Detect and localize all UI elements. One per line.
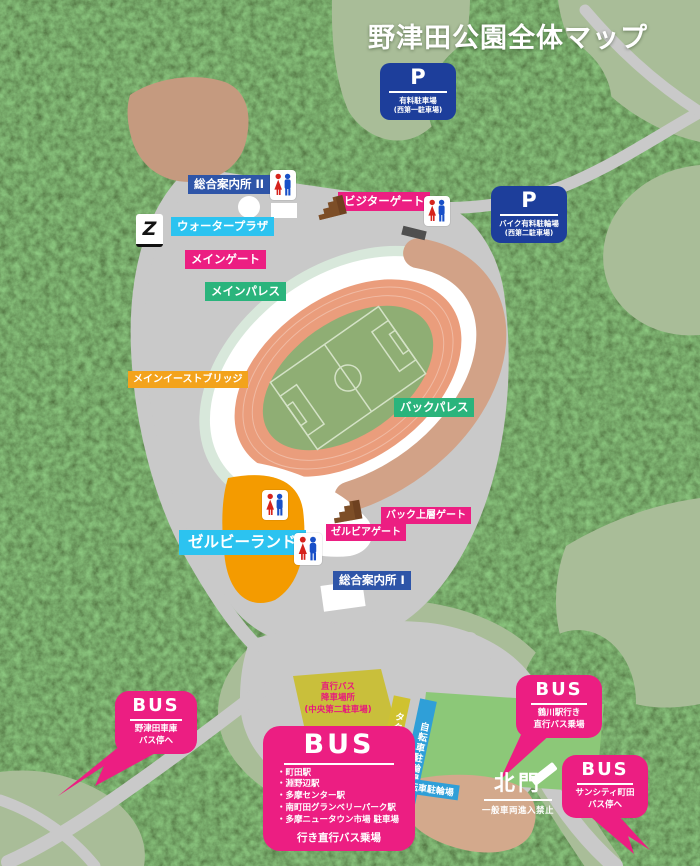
label-main-east-bridge: メインイーストブリッジ [128,371,248,388]
bus-footer: 行き直行バス乗場 [269,830,409,845]
bus-heading: BUS [119,696,193,716]
bus-line: サンシティ町田 [566,788,644,800]
parking-sub: (西第一駐車場) [382,106,454,115]
restroom-icon [424,196,450,226]
park-map: 野津田公園全体マップ P 有料駐車場 (西第一駐車場) P バイク有料駐輪場 (… [0,0,700,866]
bus-destination: ・淵野辺駅 [269,779,409,791]
divider [531,703,587,705]
label-water-plaza: ウォータープラザ [171,217,274,236]
dropoff-label: 直行バス 降車場所 (中央第二駐車場) [284,682,392,716]
map-title: 野津田公園全体マップ [368,16,648,55]
bus-stop-tsurukawa: BUS 鶴川駅行き 直行バス乗場 [516,675,602,738]
bus-stop-depot: BUS 野津田車庫 バス停へ [115,691,197,754]
parking-sub: (西第二駐車場) [493,229,565,238]
bus-line: バス停へ [119,736,193,748]
label-info-center-2: 総合案内所 II [188,175,270,194]
parking-name: バイク有料駐輪場 [493,219,565,229]
divider [389,91,447,93]
divider [130,719,182,721]
club-logo-icon: Z [136,214,163,247]
parking-badge-west1: P 有料駐車場 (西第一駐車場) [380,63,456,120]
restroom-icon [262,490,288,520]
parking-icon: P [493,190,565,211]
stairs-icon [332,501,362,526]
bus-heading: BUS [520,680,598,700]
bus-destination: ・多摩ニュータウン市場 駐車場 [269,815,409,827]
bus-destination: ・多摩センター駅 [269,791,409,803]
label-info-center-1: 総合案内所 I [333,571,411,590]
north-gate-label: 北門 一般車両進入禁止 [474,771,562,816]
divider [284,763,394,765]
bus-heading: BUS [566,760,644,780]
parking-badge-west2: P バイク有料駐輪場 (西第二駐車場) [491,186,567,243]
bus-line: 野津田車庫 [119,724,193,736]
parking-name: 有料駐車場 [382,96,454,106]
label-back-palace: バックパレス [394,398,474,417]
label-visitor-gate: ビジターゲート [338,192,430,211]
club-logo-glyph: Z [143,218,157,240]
bus-stop-suncity: BUS サンシティ町田 バス停へ [562,755,648,818]
bus-destination: ・町田駅 [269,768,409,780]
label-zelvy-land: ゼルビーランド [179,530,306,555]
bus-destination: ・南町田グランベリーパーク駅 [269,803,409,815]
restroom-icon [270,170,296,200]
dropoff-line: 降車場所 [284,693,392,704]
bus-heading: BUS [269,730,409,760]
bus-terminal: BUS ・町田駅 ・淵野辺駅 ・多摩センター駅 ・南町田グランベリーパーク駅 ・… [263,726,415,851]
dropoff-line: (中央第二駐車場) [284,705,392,716]
bus-line: 鶴川駅行き [520,708,598,720]
bus-line: 直行バス乗場 [520,720,598,732]
round-building [238,196,260,218]
stairs-icon [316,197,346,222]
label-main-gate: メインゲート [185,250,266,269]
label-zelvia-gate: ゼルビアゲート [326,524,406,541]
north-gate-name: 北門 [474,771,562,796]
label-back-upper-gate: バック上層ゲート [381,507,471,524]
divider [577,783,633,785]
restroom-icon [294,533,322,565]
north-gate-note: 一般車両進入禁止 [474,804,562,816]
small-building [271,203,297,218]
parking-icon: P [382,67,454,88]
label-main-palace: メインパレス [205,282,286,301]
bus-line: バス停へ [566,800,644,812]
dropoff-line: 直行バス [284,682,392,693]
divider [484,799,552,801]
divider [500,214,558,216]
